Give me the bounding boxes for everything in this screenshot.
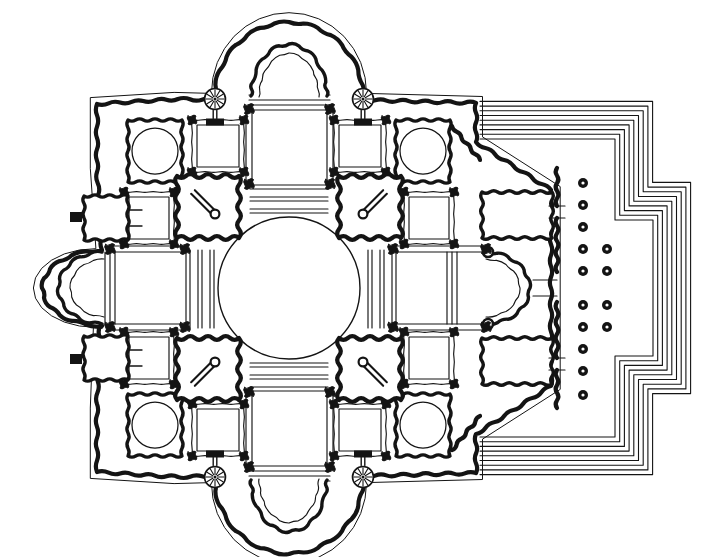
- wall-node: [105, 322, 116, 333]
- column-dot-center: [581, 203, 584, 206]
- wall-node: [381, 451, 391, 461]
- wall-node: [449, 327, 459, 337]
- east-wall-segment: [556, 370, 559, 408]
- stair-bar-knob: [211, 210, 220, 219]
- wall-node: [180, 244, 191, 255]
- wall-node: [244, 387, 255, 398]
- wall-node: [325, 387, 336, 398]
- bay-room: [192, 404, 245, 457]
- wall-node: [449, 239, 459, 249]
- wall-node: [169, 327, 179, 337]
- rosette-center-dot: [214, 476, 217, 479]
- crossing-pier: [337, 336, 403, 402]
- rosette-pedestal: [206, 119, 224, 126]
- wall-node: [449, 187, 459, 197]
- stair-bar-knob: [359, 358, 368, 367]
- wall-node: [239, 115, 249, 125]
- wall-node: [399, 327, 409, 337]
- wall-node: [244, 179, 255, 190]
- column-dot-center: [581, 347, 584, 350]
- rosette-center-dot: [362, 476, 365, 479]
- column-dot-center: [605, 269, 608, 272]
- wall-node: [388, 244, 399, 255]
- east-wall-segment: [556, 218, 559, 272]
- column-dot-center: [581, 325, 584, 328]
- wall-node: [187, 451, 197, 461]
- crossing-pier: [337, 174, 403, 240]
- column-dot-center: [605, 247, 608, 250]
- wall-node: [244, 462, 255, 473]
- bay-room: [404, 332, 455, 385]
- wall-node: [325, 104, 336, 115]
- wall-node: [388, 322, 399, 333]
- rosette-pedestal: [354, 451, 372, 458]
- rosette-center-dot: [362, 98, 365, 101]
- floor-plan-drawing: [0, 0, 720, 557]
- wall-node: [449, 379, 459, 389]
- wall-node: [169, 239, 179, 249]
- stair-bar-knob: [211, 358, 220, 367]
- portico-side-room: [481, 191, 554, 240]
- crossing-pier: [175, 336, 241, 402]
- crossing-pier: [175, 174, 241, 240]
- column-dot-center: [581, 247, 584, 250]
- page-background: [0, 0, 720, 557]
- wall-node: [325, 179, 336, 190]
- wall-node: [244, 104, 255, 115]
- column-dot-center: [581, 393, 584, 396]
- wall-node: [325, 462, 336, 473]
- wall-node: [187, 115, 197, 125]
- bay-room: [334, 120, 387, 173]
- stair-bar-knob: [359, 210, 368, 219]
- wall-node: [239, 451, 249, 461]
- column-dot-center: [581, 369, 584, 372]
- east-wall-segment: [556, 168, 559, 206]
- rosette-pedestal: [206, 451, 224, 458]
- bay-room: [124, 192, 175, 245]
- west-chapel-square: [83, 195, 129, 241]
- column-dot-center: [581, 269, 584, 272]
- wall-node: [329, 115, 339, 125]
- wall-node: [180, 322, 191, 333]
- column-dot-center: [581, 181, 584, 184]
- bay-room: [124, 332, 175, 385]
- bay-room: [334, 404, 387, 457]
- wall-node: [105, 244, 116, 255]
- wall-node: [481, 244, 492, 255]
- west-chapel-stub: [70, 354, 82, 364]
- west-chapel-stub: [70, 212, 82, 222]
- west-chapel-square: [83, 335, 129, 381]
- wall-node: [481, 322, 492, 333]
- wall-node: [399, 239, 409, 249]
- portico-side-room: [481, 337, 554, 386]
- portico-colonnade: [578, 178, 612, 400]
- wall-node: [381, 115, 391, 125]
- column-dot-center: [581, 225, 584, 228]
- bay-room: [192, 120, 245, 173]
- rosette-pedestal: [354, 119, 372, 126]
- bay-room: [404, 192, 455, 245]
- wall-node: [329, 451, 339, 461]
- rosette-center-dot: [214, 98, 217, 101]
- column-dot-center: [605, 303, 608, 306]
- column-dot-center: [581, 303, 584, 306]
- east-wall-segment: [556, 302, 559, 358]
- column-dot-center: [605, 325, 608, 328]
